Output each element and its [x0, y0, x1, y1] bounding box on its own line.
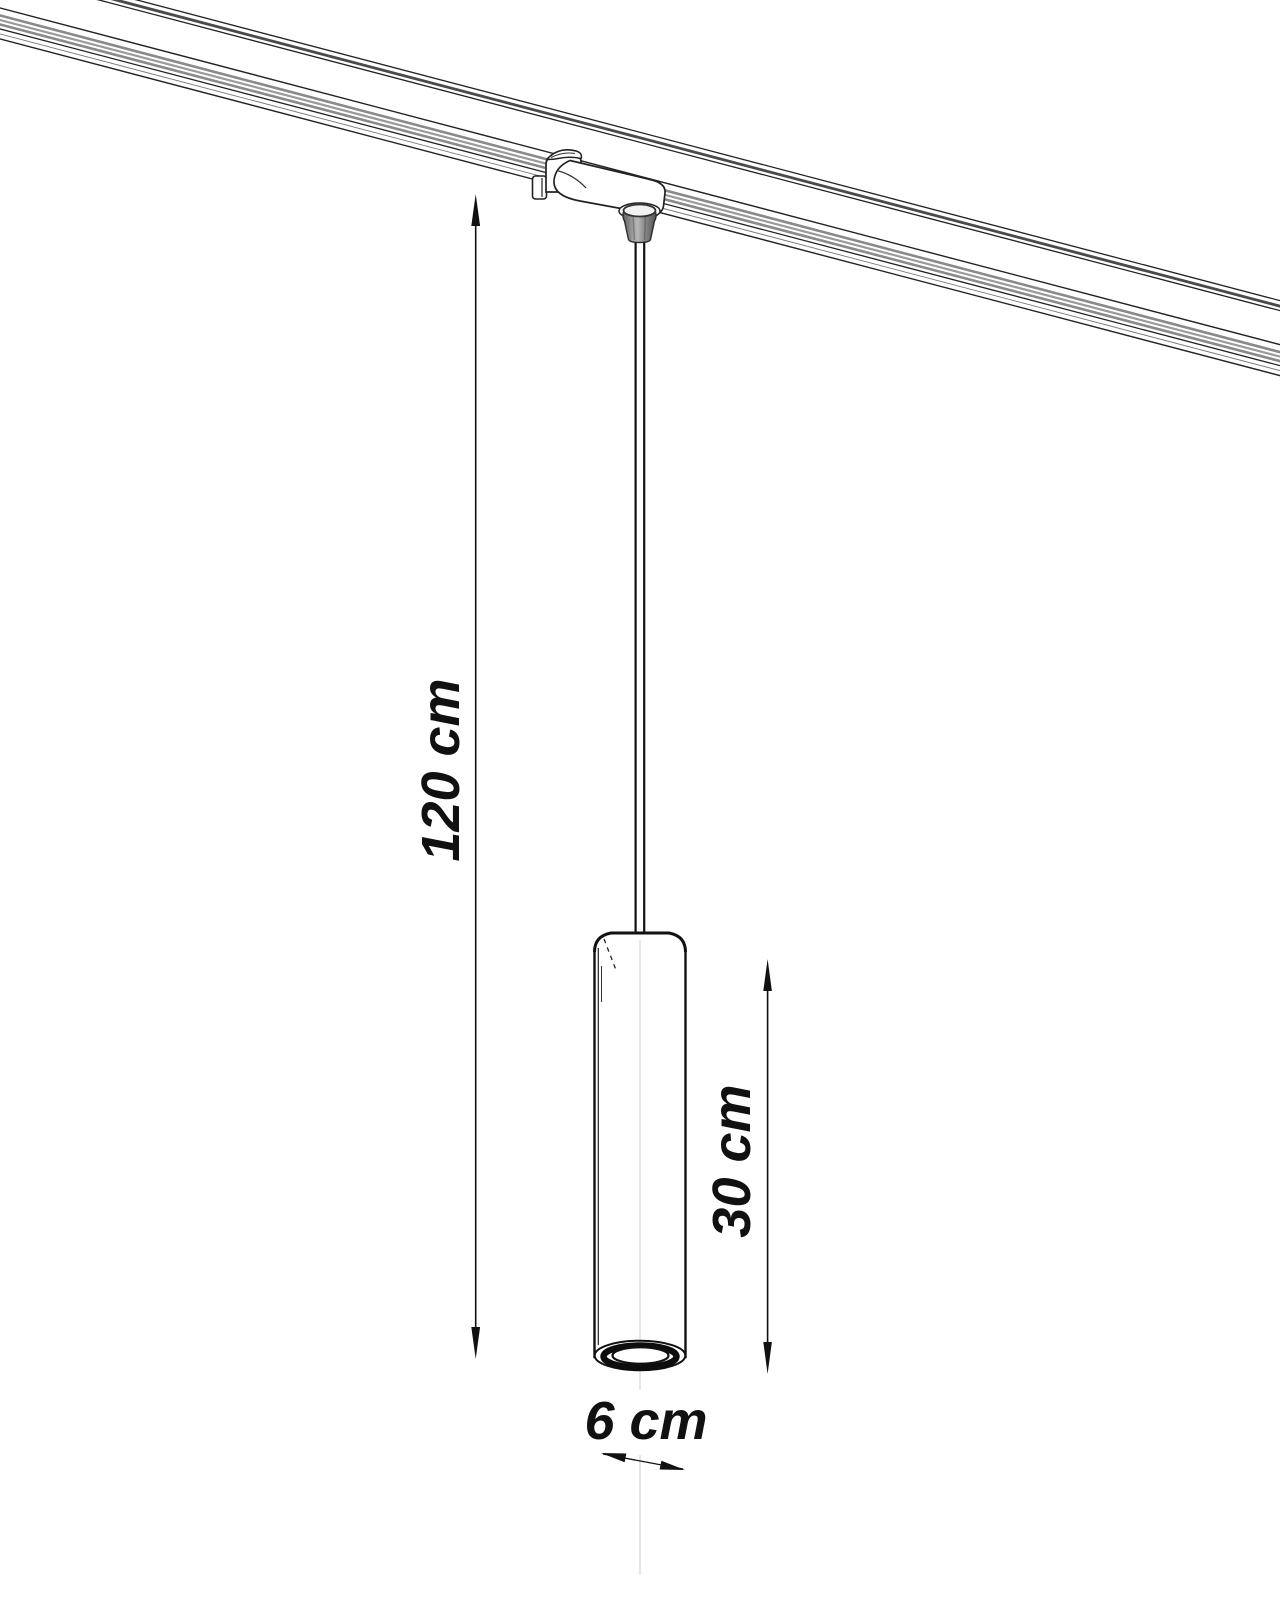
dimension-label-shade-height: 30 cm — [703, 1061, 761, 1261]
arrowhead-up-icon — [763, 959, 772, 991]
dimension-label-shade-diameter: 6 cm — [546, 1392, 746, 1450]
dimension-line-drop-height — [471, 194, 480, 1359]
track-adapter — [533, 150, 666, 243]
dimension-line-shade-diameter — [601, 1453, 685, 1470]
adapter-lock-clip — [533, 176, 547, 199]
shade-bottom-rim — [595, 1341, 686, 1371]
dimension-label-drop-height: 120 cm — [412, 670, 470, 870]
suspension-cable — [636, 243, 645, 935]
arrowhead-down-icon — [471, 1327, 480, 1359]
dimension-line-shade-height — [763, 959, 772, 1374]
arrowhead-right-icon — [660, 1461, 685, 1470]
pendant-tube-shade — [595, 933, 686, 1390]
diagram-canvas: 120 cm 30 cm 6 cm — [0, 0, 1280, 1600]
pendant-lamp-line-drawing — [0, 0, 1280, 1600]
arrowhead-up-icon — [471, 194, 480, 226]
arrowhead-left-icon — [601, 1453, 626, 1462]
arrowhead-down-icon — [763, 1342, 772, 1374]
